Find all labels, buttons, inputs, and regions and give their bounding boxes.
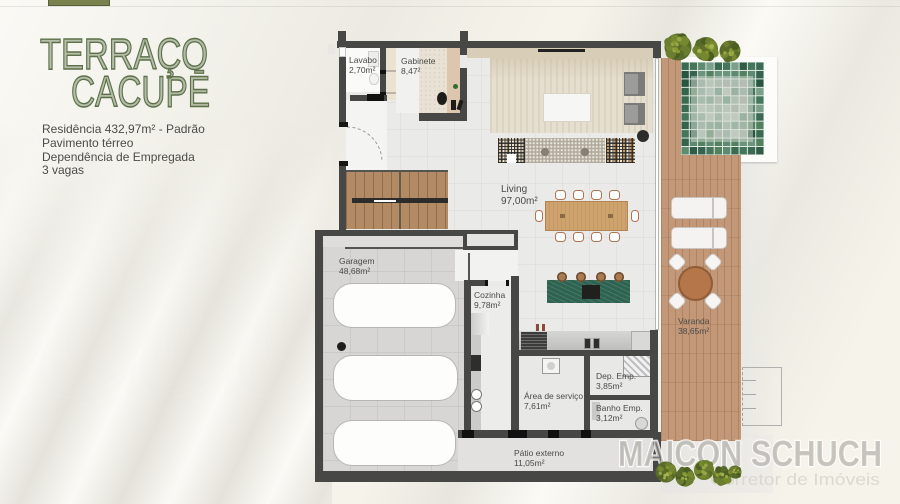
svg-text:CACUPĒ: CACUPĒ — [71, 69, 210, 117]
